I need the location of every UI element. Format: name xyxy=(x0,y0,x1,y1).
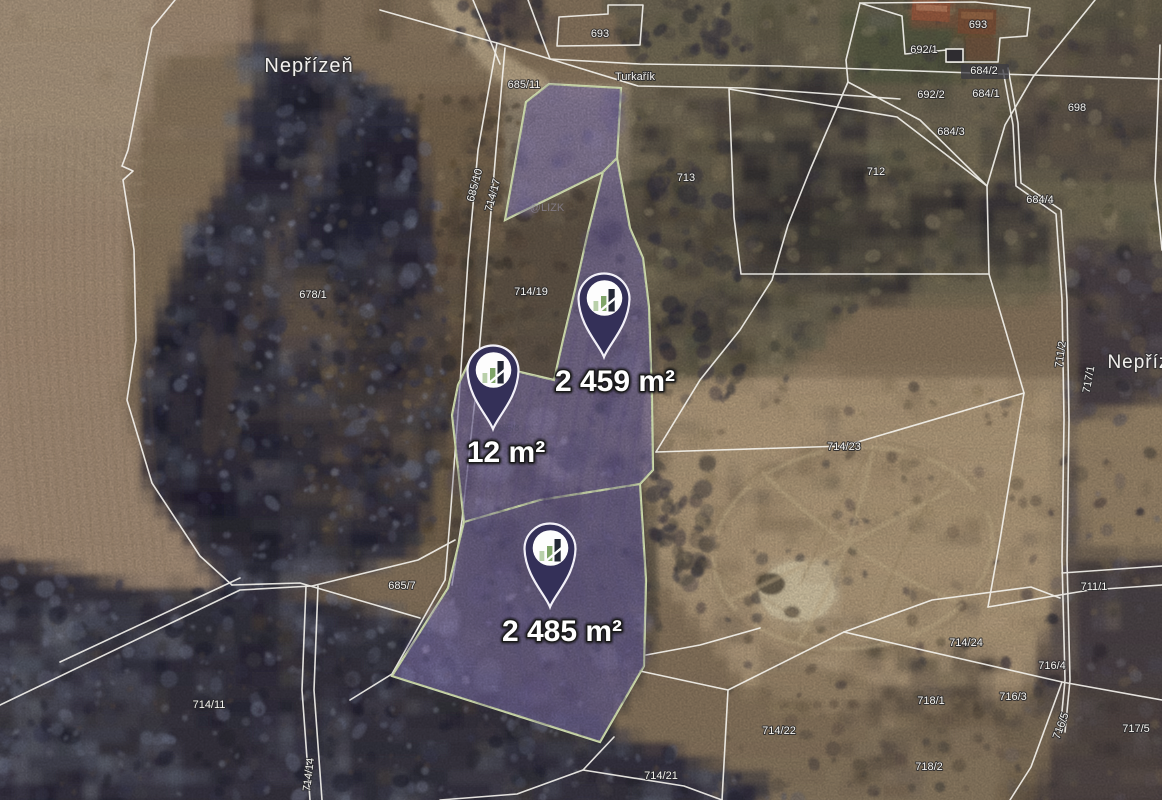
svg-text:714/23: 714/23 xyxy=(827,441,861,453)
svg-text:718/2: 718/2 xyxy=(915,761,943,773)
svg-text:Nepřízeň: Nepřízeň xyxy=(1107,352,1162,373)
svg-text:684/2: 684/2 xyxy=(970,65,998,77)
svg-text:716/4: 716/4 xyxy=(1038,660,1066,672)
svg-text:714/22: 714/22 xyxy=(762,725,796,737)
svg-text:684/3: 684/3 xyxy=(937,126,965,138)
svg-text:718/1: 718/1 xyxy=(917,695,945,707)
svg-text:717/5: 717/5 xyxy=(1122,723,1150,735)
svg-text:685/8: 685/8 xyxy=(497,423,520,433)
svg-text:678/1: 678/1 xyxy=(299,289,327,301)
svg-text:@LIZK: @LIZK xyxy=(530,202,565,214)
svg-text:684/4: 684/4 xyxy=(1026,194,1054,206)
svg-text:698: 698 xyxy=(1068,102,1086,114)
svg-text:2 485 m²: 2 485 m² xyxy=(502,615,622,648)
svg-text:711/1: 711/1 xyxy=(1081,581,1108,593)
svg-text:714/21: 714/21 xyxy=(644,770,678,782)
svg-text:2 459 m²: 2 459 m² xyxy=(555,365,675,398)
svg-text:716/3: 716/3 xyxy=(999,691,1027,703)
svg-text:685/11: 685/11 xyxy=(508,79,541,91)
svg-text:714/24: 714/24 xyxy=(949,637,983,649)
svg-text:693: 693 xyxy=(969,19,987,31)
svg-text:713: 713 xyxy=(677,172,695,184)
svg-text:684/1: 684/1 xyxy=(972,88,1000,100)
svg-text:714/19: 714/19 xyxy=(514,286,548,298)
svg-text:Nepřízeň: Nepřízeň xyxy=(264,55,353,77)
svg-text:692/1: 692/1 xyxy=(910,44,938,56)
svg-text:Turkařík: Turkařík xyxy=(615,71,655,83)
svg-text:712: 712 xyxy=(867,166,885,178)
svg-text:692/2: 692/2 xyxy=(917,89,945,101)
svg-text:685/7: 685/7 xyxy=(388,580,416,592)
svg-text:12 m²: 12 m² xyxy=(467,436,545,469)
svg-text:693: 693 xyxy=(591,28,609,40)
svg-text:714/11: 714/11 xyxy=(193,699,226,711)
